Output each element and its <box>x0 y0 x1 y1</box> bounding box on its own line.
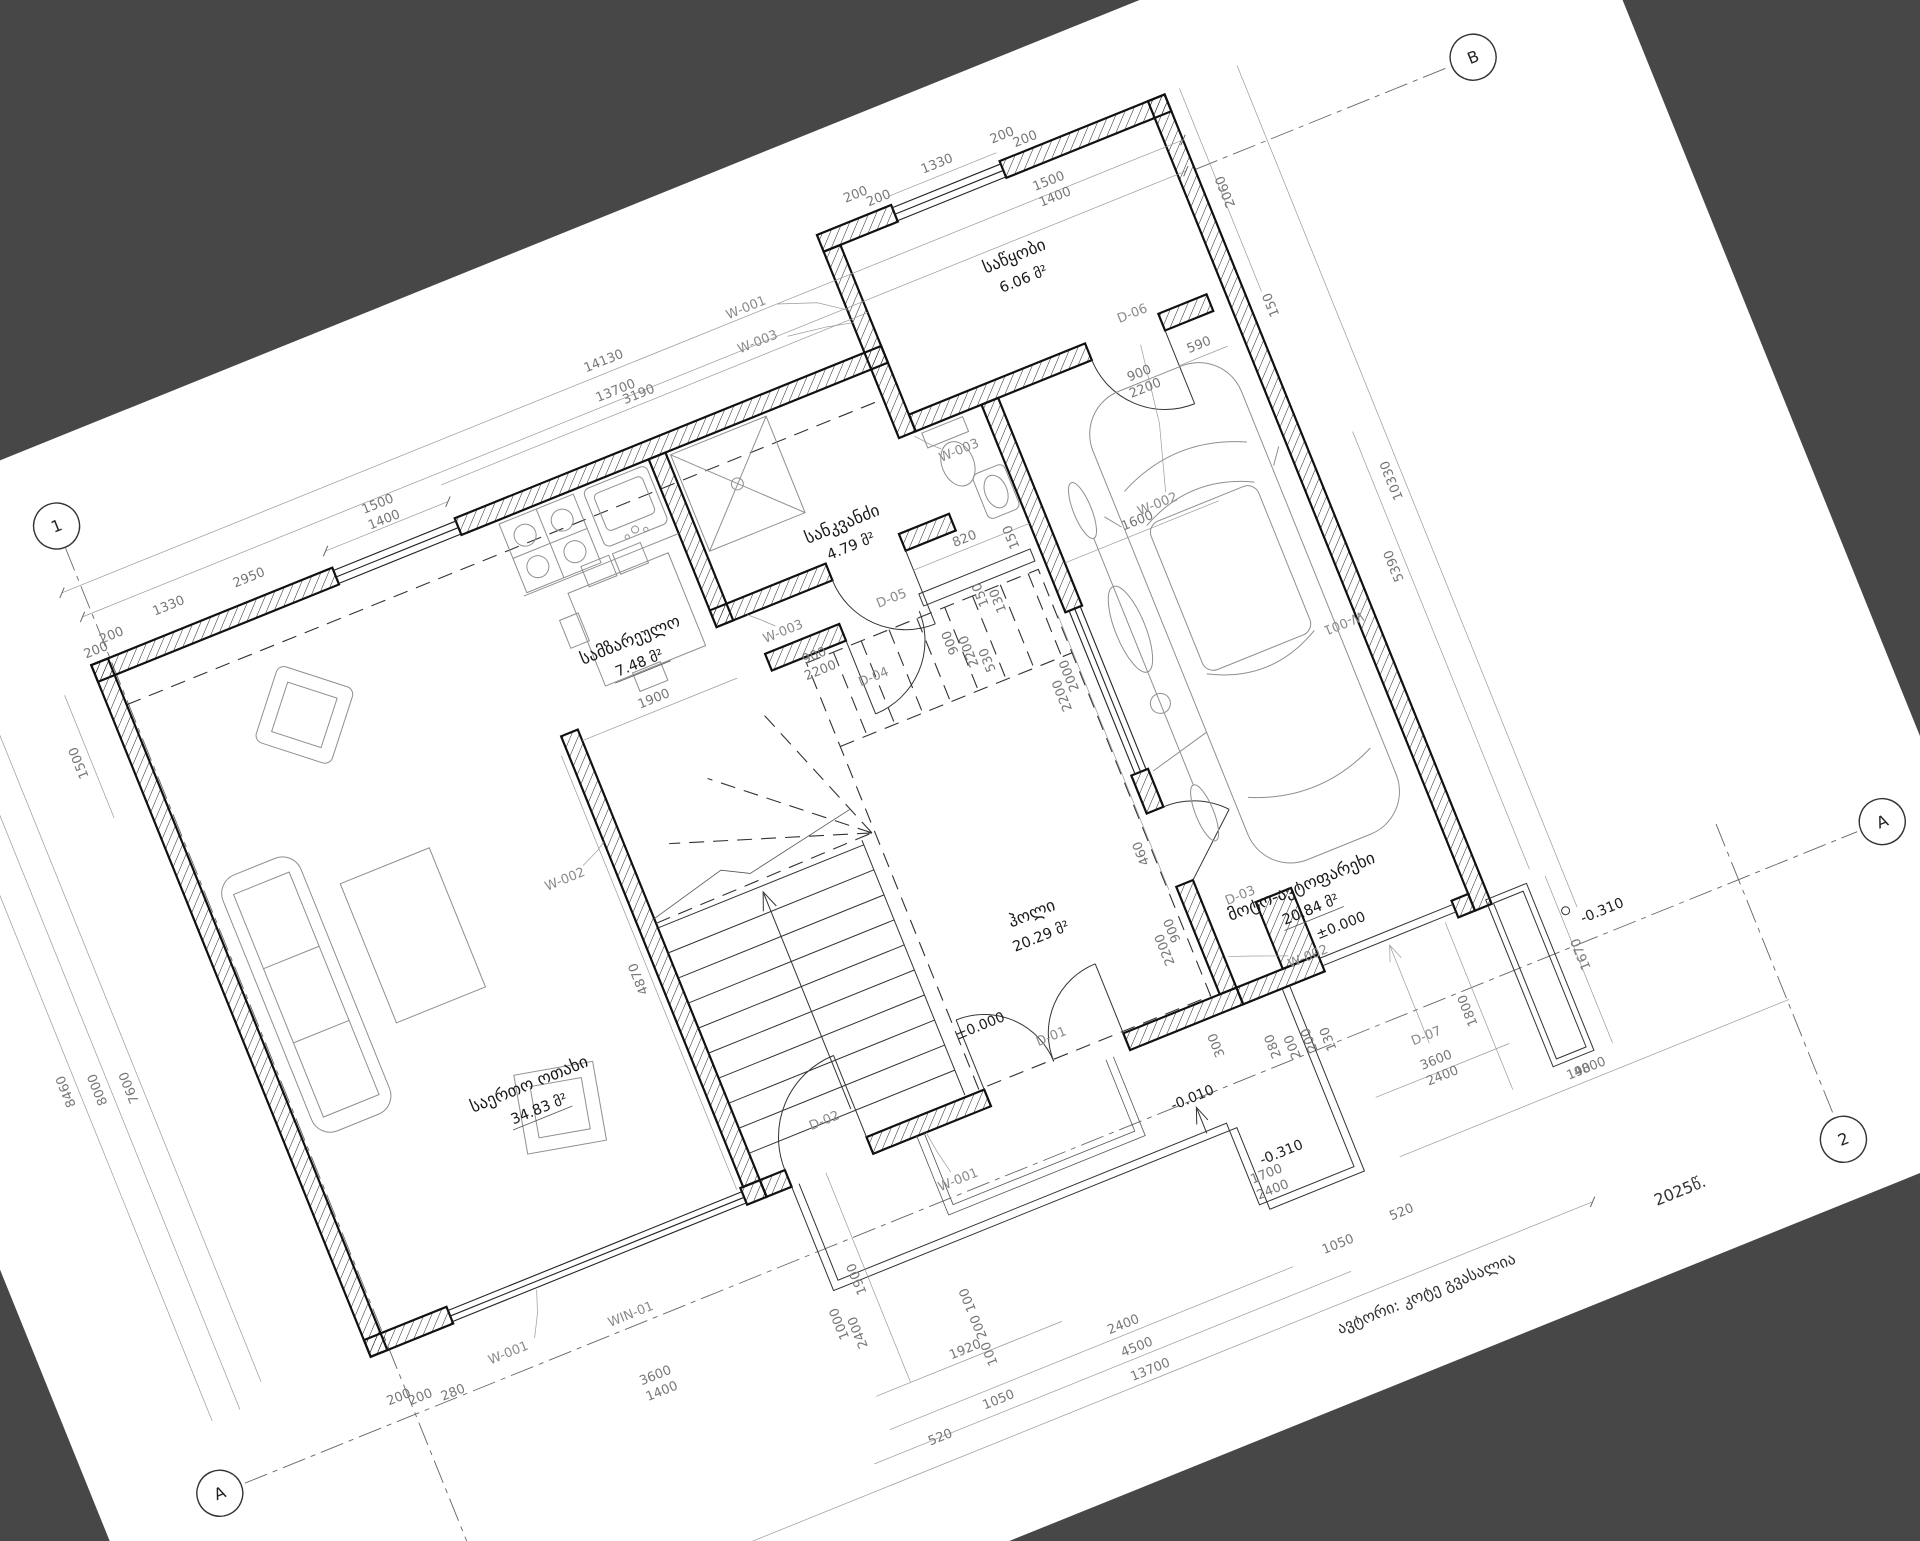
drawing-canvas: 1 B A A 2 <box>0 0 1920 1541</box>
floor-plan-screenshot: 1 B A A 2 <box>0 0 1920 1541</box>
